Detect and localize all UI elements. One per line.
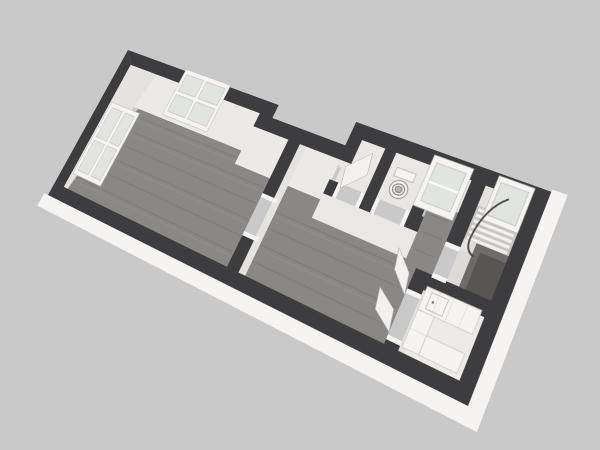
floor-plan-render <box>0 0 600 450</box>
floor-plan-svg <box>33 28 580 440</box>
plan-stage <box>48 50 547 406</box>
